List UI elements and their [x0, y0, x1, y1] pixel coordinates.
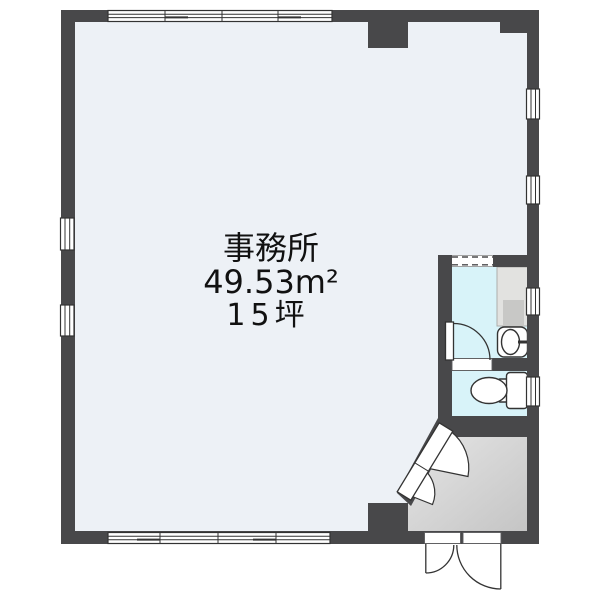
toilet-bowl — [471, 378, 507, 404]
left-window-upper — [61, 218, 75, 250]
kitchen-sink — [503, 300, 524, 325]
right-window-toilet — [527, 377, 540, 406]
room-area-tsubo-label: 15坪 — [226, 298, 309, 333]
wash-basin-bowl — [502, 330, 520, 355]
bottom-sliding-window — [108, 533, 330, 544]
room-name-label: 事務所 — [223, 229, 319, 267]
right-window-2 — [527, 176, 540, 204]
bottom-pillar — [368, 503, 408, 544]
dashed-opening — [452, 256, 493, 267]
floor-plan: 事務所 49.53m² 15坪 — [0, 0, 600, 600]
right-window-kitchen — [527, 288, 540, 315]
toilet-door — [452, 359, 492, 371]
right-window-1 — [527, 89, 540, 119]
floor-plan-drawing: 事務所 49.53m² 15坪 — [0, 0, 600, 600]
top-sliding-window — [108, 11, 332, 22]
entrance-double-door — [425, 533, 502, 590]
left-wall — [61, 10, 75, 544]
toilet-tank — [507, 373, 528, 409]
top-pillar — [368, 10, 408, 48]
left-window-lower — [61, 305, 75, 336]
room-area-sqm-label: 49.53m² — [203, 263, 339, 301]
